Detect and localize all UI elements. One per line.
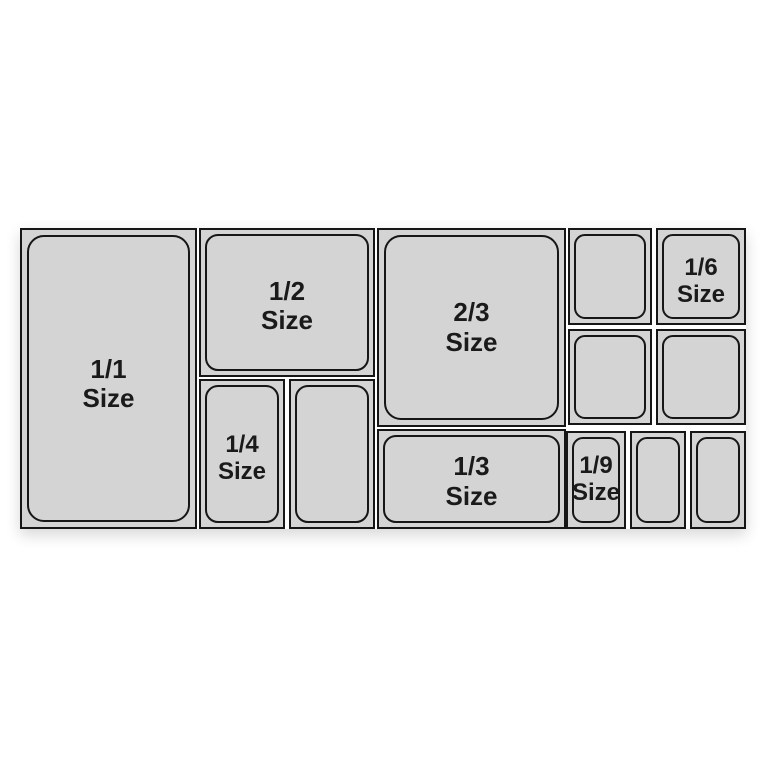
pan-1-9-unlabeled-3 [690,431,746,529]
pan-1-6-bottom-right [656,329,746,425]
pan-rim [295,385,369,523]
pan-1-4-unlabeled [289,379,375,529]
pan-rim [662,335,740,419]
pan-1-1-label: 1/1 Size [22,230,195,527]
pan-1-2-label: 1/2 Size [201,230,373,375]
pan-1-4-label: 1/4 Size [201,381,283,527]
pan-1-3: 1/3 Size [377,429,566,529]
diagram-canvas: 1/1 Size 1/2 Size 1/4 Size 2/3 Size 1/3 … [0,0,768,768]
pan-1-9: 1/9 Size [566,431,626,529]
pan-1-2: 1/2 Size [199,228,375,377]
pan-1-9-label: 1/9 Size [568,433,624,527]
pan-layout: 1/1 Size 1/2 Size 1/4 Size 2/3 Size 1/3 … [20,228,746,529]
pan-1-1: 1/1 Size [20,228,197,529]
pan-1-6-top-left [568,228,652,325]
pan-1-6-bottom-left [568,329,652,425]
pan-2-3: 2/3 Size [377,228,566,427]
pan-1-9-unlabeled-2 [630,431,686,529]
pan-1-6-label: 1/6 Size [658,230,744,323]
pan-rim [574,335,646,419]
pan-1-3-label: 1/3 Size [379,431,564,527]
pan-rim [574,234,646,319]
pan-2-3-label: 2/3 Size [379,230,564,425]
pan-1-6: 1/6 Size [656,228,746,325]
pan-1-4: 1/4 Size [199,379,285,529]
pan-rim [636,437,680,523]
pan-rim [696,437,740,523]
